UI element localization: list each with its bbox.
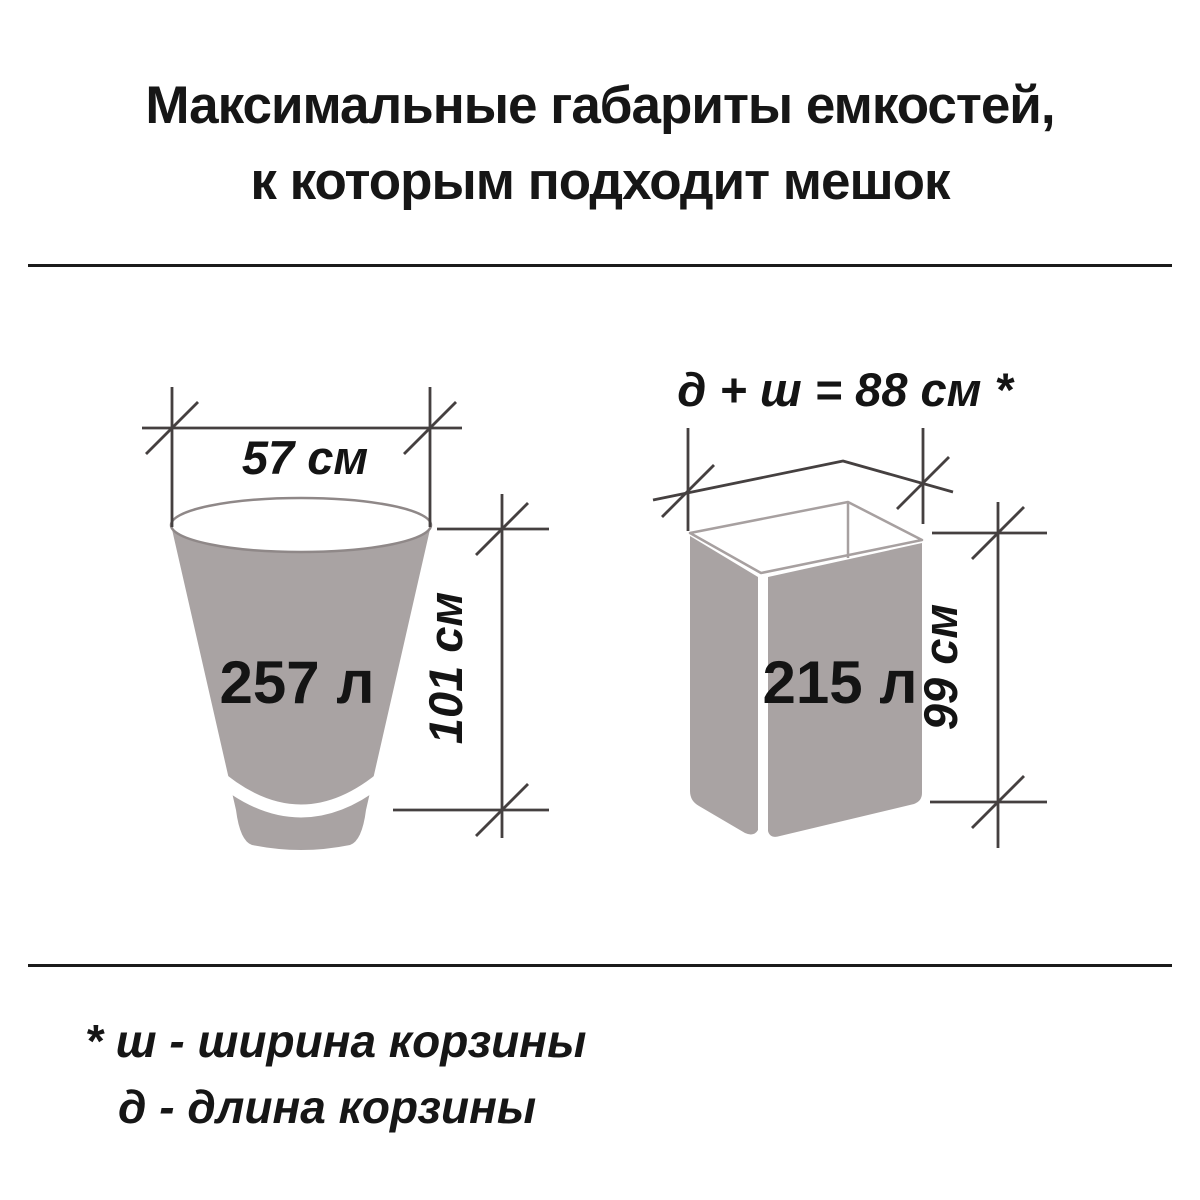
basket-height-label: 99 см (914, 604, 967, 730)
footnote-line-2: д - длина корзины (85, 1074, 586, 1140)
footnote: * ш - ширина корзины д - длина корзины (85, 1008, 586, 1140)
bucket-volume-label: 257 л (220, 649, 375, 716)
infographic-page: Максимальные габариты емкостей, к которы… (0, 0, 1200, 1200)
bucket-height-label: 101 см (419, 592, 472, 744)
basket-volume-label: 215 л (763, 649, 918, 716)
footnote-line-1: * ш - ширина корзины (85, 1008, 586, 1074)
bottom-divider (28, 964, 1172, 967)
bucket-diagram: 257 л (171, 498, 431, 850)
bucket-rim (171, 498, 431, 552)
bucket-width-label: 57 см (242, 431, 368, 484)
basket-left-face (690, 536, 758, 834)
basket-diagram: 215 л (690, 502, 922, 837)
basket-width-label: д + ш = 88 см * (677, 363, 1015, 416)
